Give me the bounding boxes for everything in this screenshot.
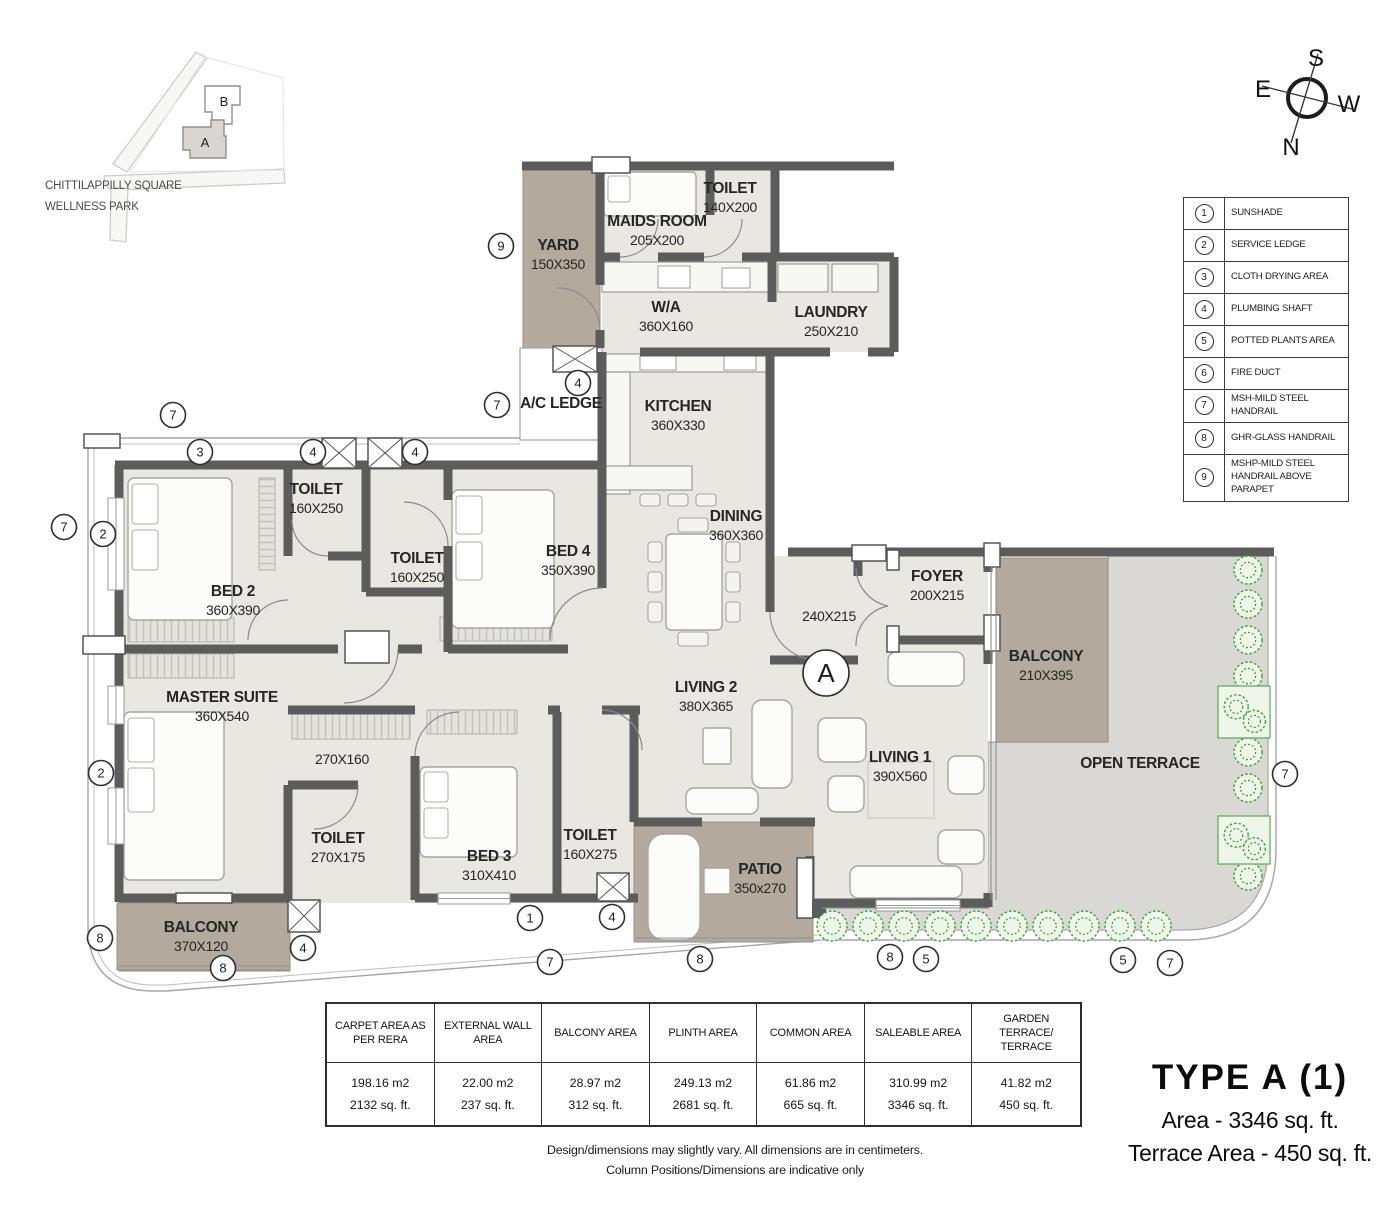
column bbox=[84, 434, 120, 448]
column bbox=[176, 893, 232, 903]
chair bbox=[696, 494, 716, 506]
column bbox=[984, 543, 1000, 567]
title-block: TYPE A (1) Area - 3346 sq. ft. Terrace A… bbox=[1085, 1058, 1400, 1167]
legend-number-circle: 7 bbox=[1195, 396, 1214, 415]
area-m2: 198.16 m2 bbox=[351, 1076, 409, 1090]
legend-number-cell: 9 bbox=[1184, 455, 1225, 501]
pillow bbox=[132, 484, 158, 524]
plan-marker-2: 2 bbox=[89, 761, 114, 786]
legend-number-circle: 4 bbox=[1195, 300, 1214, 319]
furniture bbox=[648, 834, 700, 940]
furniture bbox=[752, 700, 792, 788]
marker-number: 5 bbox=[1119, 953, 1126, 968]
chair bbox=[668, 494, 688, 506]
pillow bbox=[424, 808, 448, 838]
plumbing-shaft-box bbox=[368, 438, 402, 468]
marker-number: 1 bbox=[526, 911, 533, 926]
compass-west: W bbox=[1338, 91, 1361, 118]
plant bbox=[997, 911, 1027, 941]
disclaimer: Design/dimensions may slightly vary. All… bbox=[490, 1141, 980, 1181]
furniture bbox=[818, 718, 866, 762]
legend-number-cell: 5 bbox=[1184, 326, 1225, 357]
area-m2: 22.00 m2 bbox=[462, 1076, 513, 1090]
plan-marker-5: 5 bbox=[914, 947, 939, 972]
plan-marker-7: 7 bbox=[52, 515, 77, 540]
area-table-value: 310.99 m23346 sq. ft. bbox=[865, 1063, 973, 1125]
counter bbox=[604, 466, 692, 490]
plant bbox=[1234, 738, 1262, 766]
pillow bbox=[132, 530, 158, 570]
plan-marker-4: 4 bbox=[403, 440, 428, 465]
legend-number-cell: 7 bbox=[1184, 390, 1225, 422]
fixture bbox=[722, 268, 750, 288]
legend-number-cell: 4 bbox=[1184, 294, 1225, 325]
area-table-value: 249.13 m22681 sq. ft. bbox=[650, 1063, 758, 1125]
plan-marker-8: 8 bbox=[878, 945, 903, 970]
column bbox=[592, 157, 630, 173]
chair bbox=[726, 602, 740, 622]
area-sqft: 665 sq. ft. bbox=[784, 1098, 838, 1112]
legend-number-circle: 5 bbox=[1195, 332, 1214, 351]
counter bbox=[832, 264, 878, 292]
plant bbox=[925, 911, 955, 941]
column bbox=[984, 615, 1000, 651]
marker-number: 7 bbox=[1166, 956, 1173, 971]
legend-label: MSH-MILD STEEL HANDRAIL bbox=[1225, 390, 1348, 422]
column bbox=[887, 626, 899, 652]
column bbox=[887, 550, 899, 570]
chair bbox=[648, 572, 662, 592]
column bbox=[83, 636, 125, 654]
fixture bbox=[640, 356, 676, 370]
area-table-header: EXTERNAL WALL AREA bbox=[435, 1004, 543, 1063]
area-table-value: 28.97 m2312 sq. ft. bbox=[542, 1063, 650, 1125]
plan-marker-4: 4 bbox=[301, 440, 326, 465]
area-table-header: COMMON AREA bbox=[757, 1004, 865, 1063]
plan-marker-8: 8 bbox=[88, 926, 113, 951]
plant-outer bbox=[853, 911, 883, 941]
wardrobe bbox=[427, 710, 517, 734]
plan-marker-5: 5 bbox=[1111, 948, 1136, 973]
plant bbox=[1234, 626, 1262, 654]
legend-number-cell: 8 bbox=[1184, 423, 1225, 454]
plant-outer bbox=[1105, 911, 1135, 941]
legend-label: SERVICE LEDGE bbox=[1225, 230, 1348, 261]
plant-outer bbox=[997, 911, 1027, 941]
furniture bbox=[704, 868, 730, 894]
plant-outer bbox=[1234, 774, 1262, 802]
marker-number: 7 bbox=[1281, 767, 1288, 782]
plant-outer bbox=[1234, 590, 1262, 618]
plan-marker-8: 8 bbox=[211, 956, 236, 981]
legend-label: MSHP-MILD STEEL HANDRAIL ABOVE PARAPET bbox=[1225, 455, 1348, 501]
marker-number: 7 bbox=[546, 955, 553, 970]
marker-number: 7 bbox=[60, 520, 67, 535]
svg-text:A: A bbox=[817, 658, 835, 688]
pillow bbox=[424, 772, 448, 802]
plumbing-shaft-box bbox=[322, 438, 356, 468]
plant bbox=[889, 911, 919, 941]
legend-row-8: 8GHR-GLASS HANDRAIL bbox=[1184, 423, 1348, 455]
area-sqft: 2681 sq. ft. bbox=[673, 1098, 734, 1112]
plan-marker-7: 7 bbox=[161, 403, 186, 428]
column bbox=[852, 545, 886, 561]
plant bbox=[853, 911, 883, 941]
fixture bbox=[724, 356, 756, 370]
legend-row-9: 9MSHP-MILD STEEL HANDRAIL ABOVE PARAPET bbox=[1184, 455, 1348, 501]
plant-outer bbox=[1224, 823, 1248, 847]
legend-label: PLUMBING SHAFT bbox=[1225, 294, 1348, 325]
plant-outer bbox=[1243, 838, 1265, 860]
plant bbox=[817, 911, 847, 941]
pillow bbox=[456, 496, 482, 534]
area-table: CARPET AREA AS PER RERAEXTERNAL WALL ARE… bbox=[325, 1002, 1082, 1127]
pillow bbox=[608, 176, 630, 202]
plant-outer bbox=[1033, 911, 1063, 941]
area-table-value: 41.82 m2450 sq. ft. bbox=[972, 1063, 1080, 1125]
legend-label: FIRE DUCT bbox=[1225, 358, 1348, 389]
plan-marker-4: 4 bbox=[291, 936, 316, 961]
area-table-value: 198.16 m22132 sq. ft. bbox=[327, 1063, 435, 1125]
legend-row-4: 4PLUMBING SHAFT bbox=[1184, 294, 1348, 326]
compass-north: N bbox=[1282, 134, 1299, 161]
chair bbox=[678, 632, 708, 646]
disclaimer-line1: Design/dimensions may slightly vary. All… bbox=[490, 1141, 980, 1161]
room-label-open-terrace: OPEN TERRACE bbox=[1080, 755, 1200, 772]
plan-marker-7: 7 bbox=[538, 950, 563, 975]
plan-marker-7: 7 bbox=[1158, 951, 1183, 976]
chair bbox=[726, 542, 740, 562]
furniture bbox=[948, 756, 984, 794]
compass-south: S bbox=[1308, 45, 1324, 72]
furniture bbox=[938, 830, 984, 864]
plant-outer bbox=[1224, 695, 1248, 719]
plant bbox=[1033, 911, 1063, 941]
plant-outer bbox=[961, 911, 991, 941]
wardrobe bbox=[259, 478, 275, 570]
plan-type-title: TYPE A (1) bbox=[1085, 1058, 1400, 1098]
legend-number-circle: 2 bbox=[1195, 236, 1214, 255]
furniture bbox=[666, 534, 722, 630]
plant bbox=[961, 911, 991, 941]
plumbing-shaft-box bbox=[597, 873, 629, 901]
pillow bbox=[128, 768, 154, 812]
plant bbox=[1224, 695, 1248, 719]
legend-number-circle: 6 bbox=[1195, 364, 1214, 383]
plant bbox=[1141, 911, 1171, 941]
plan-marker-7: 7 bbox=[485, 393, 510, 418]
chair bbox=[678, 518, 708, 532]
marker-number: 8 bbox=[886, 950, 893, 965]
marker-number: 7 bbox=[169, 408, 176, 423]
compass-east: E bbox=[1255, 76, 1271, 103]
legend-row-7: 7MSH-MILD STEEL HANDRAIL bbox=[1184, 390, 1348, 423]
area-m2: 41.82 m2 bbox=[1001, 1076, 1052, 1090]
site-map: B A CHITTILAPPILLY SQUARE WELLNESS PARK bbox=[45, 52, 285, 242]
area-sqft: 450 sq. ft. bbox=[999, 1098, 1053, 1112]
window bbox=[876, 900, 960, 911]
marker-number: 3 bbox=[196, 445, 203, 460]
fixture bbox=[658, 266, 690, 288]
plan-marker-3: 3 bbox=[188, 440, 213, 465]
furniture bbox=[686, 788, 758, 814]
chair bbox=[726, 572, 740, 592]
marker-number: 2 bbox=[99, 527, 106, 542]
pillow bbox=[128, 718, 154, 762]
column bbox=[345, 631, 389, 663]
counter bbox=[778, 264, 828, 292]
column bbox=[797, 858, 813, 918]
marker-number: 4 bbox=[411, 445, 418, 460]
marker-number: 8 bbox=[96, 931, 103, 946]
legend-row-5: 5POTTED PLANTS AREA bbox=[1184, 326, 1348, 358]
legend-number-cell: 2 bbox=[1184, 230, 1225, 261]
plan-marker-8: 8 bbox=[688, 947, 713, 972]
plant bbox=[1234, 590, 1262, 618]
marker-number: 5 bbox=[922, 952, 929, 967]
legend-number-circle: 3 bbox=[1195, 268, 1214, 287]
marker-number: 7 bbox=[493, 398, 500, 413]
wardrobe bbox=[292, 713, 410, 739]
legend-label: GHR-GLASS HANDRAIL bbox=[1225, 423, 1348, 454]
plant bbox=[1234, 774, 1262, 802]
plan-marker-7: 7 bbox=[1273, 762, 1298, 787]
area-table-header: SALEABLE AREA bbox=[865, 1004, 973, 1063]
plumbing-shaft-box bbox=[288, 900, 320, 932]
plan-marker-4: 4 bbox=[566, 371, 591, 396]
area-m2: 249.13 m2 bbox=[674, 1076, 732, 1090]
window bbox=[108, 788, 124, 844]
site-caption-line2: WELLNESS PARK bbox=[45, 201, 139, 213]
plant-outer bbox=[1234, 626, 1262, 654]
area-table-header: BALCONY AREA bbox=[542, 1004, 650, 1063]
furniture bbox=[703, 728, 731, 764]
plant bbox=[1243, 710, 1265, 732]
legend-label: CLOTH DRYING AREA bbox=[1225, 262, 1348, 293]
legend-table: 1SUNSHADE2SERVICE LEDGE3CLOTH DRYING ARE… bbox=[1183, 197, 1349, 502]
legend-number-cell: 6 bbox=[1184, 358, 1225, 389]
plant-outer bbox=[817, 911, 847, 941]
room-label-a-c-ledge: A/C LEDGE bbox=[520, 395, 602, 412]
plant bbox=[1243, 838, 1265, 860]
legend-row-1: 1SUNSHADE bbox=[1184, 198, 1348, 230]
area-sqft: 237 sq. ft. bbox=[461, 1098, 515, 1112]
marker-number: 2 bbox=[97, 766, 104, 781]
area-m2: 61.86 m2 bbox=[785, 1076, 836, 1090]
site-building-a-label: A bbox=[201, 135, 210, 150]
site-building-b-label: B bbox=[220, 94, 229, 109]
area-m2: 310.99 m2 bbox=[889, 1076, 947, 1090]
room-label-240x215: 240X215 bbox=[802, 608, 856, 624]
site-caption-line1: CHITTILAPPILLY SQUARE bbox=[45, 180, 182, 192]
area-sqft: 2132 sq. ft. bbox=[350, 1098, 411, 1112]
legend-number-circle: 9 bbox=[1195, 468, 1214, 487]
plan-marker-9: 9 bbox=[489, 234, 514, 259]
plant bbox=[1234, 556, 1262, 584]
area-sqft: 3346 sq. ft. bbox=[888, 1098, 949, 1112]
window bbox=[108, 686, 124, 724]
plant-outer bbox=[1234, 556, 1262, 584]
plant bbox=[1224, 823, 1248, 847]
pillow bbox=[456, 542, 482, 580]
area-table-header: PLINTH AREA bbox=[650, 1004, 758, 1063]
floor-plan-root: YARD150X350MAIDS ROOM205X200TOILET140X20… bbox=[52, 157, 1298, 991]
plant-outer bbox=[925, 911, 955, 941]
legend-label: SUNSHADE bbox=[1225, 198, 1348, 229]
plan-marker-1: 1 bbox=[518, 906, 543, 931]
wardrobe bbox=[128, 618, 234, 642]
section-marker-a: A bbox=[803, 650, 849, 696]
room-label-270x160: 270X160 bbox=[315, 751, 369, 767]
plant-outer bbox=[1234, 738, 1262, 766]
wardrobe bbox=[128, 654, 234, 678]
legend-number-circle: 1 bbox=[1195, 204, 1214, 223]
plant bbox=[1105, 911, 1135, 941]
compass: S E W N bbox=[1255, 45, 1361, 161]
plant-outer bbox=[1069, 911, 1099, 941]
legend-number-cell: 3 bbox=[1184, 262, 1225, 293]
legend-row-6: 6FIRE DUCT bbox=[1184, 358, 1348, 390]
window bbox=[438, 893, 510, 904]
legend-row-3: 3CLOTH DRYING AREA bbox=[1184, 262, 1348, 294]
legend-number-cell: 1 bbox=[1184, 198, 1225, 229]
area-m2: 28.97 m2 bbox=[570, 1076, 621, 1090]
furniture bbox=[828, 776, 864, 812]
plan-marker-2: 2 bbox=[91, 522, 116, 547]
marker-number: 4 bbox=[309, 445, 316, 460]
marker-number: 4 bbox=[608, 910, 615, 925]
marker-number: 4 bbox=[574, 376, 581, 391]
plumbing-shaft-box bbox=[553, 346, 597, 372]
disclaimer-line2: Column Positions/Dimensions are indicati… bbox=[490, 1161, 980, 1181]
chair bbox=[648, 602, 662, 622]
area-table-header: CARPET AREA AS PER RERA bbox=[327, 1004, 435, 1063]
plant bbox=[1234, 862, 1262, 890]
area-table-value: 22.00 m2237 sq. ft. bbox=[435, 1063, 543, 1125]
plan-terrace-area-text: Terrace Area - 450 sq. ft. bbox=[1085, 1140, 1400, 1167]
plant-outer bbox=[1141, 911, 1171, 941]
legend-label: POTTED PLANTS AREA bbox=[1225, 326, 1348, 357]
floor-plan-page: B A CHITTILAPPILLY SQUARE WELLNESS PARK … bbox=[0, 0, 1400, 1220]
area-sqft: 312 sq. ft. bbox=[568, 1098, 622, 1112]
marker-number: 9 bbox=[497, 239, 504, 254]
marker-number: 8 bbox=[219, 961, 226, 976]
legend-number-circle: 8 bbox=[1195, 429, 1214, 448]
plant-outer bbox=[889, 911, 919, 941]
plan-marker-4: 4 bbox=[600, 905, 625, 930]
plant-outer bbox=[1234, 862, 1262, 890]
marker-number: 8 bbox=[696, 952, 703, 967]
plan-area-text: Area - 3346 sq. ft. bbox=[1085, 1107, 1400, 1134]
chair bbox=[648, 542, 662, 562]
furniture bbox=[850, 866, 962, 898]
furniture bbox=[888, 652, 964, 686]
chair bbox=[640, 494, 660, 506]
balcony-bottom-left-area bbox=[117, 903, 290, 970]
area-table-value: 61.86 m2665 sq. ft. bbox=[757, 1063, 865, 1125]
legend-row-2: 2SERVICE LEDGE bbox=[1184, 230, 1348, 262]
marker-number: 4 bbox=[299, 941, 306, 956]
plant bbox=[1069, 911, 1099, 941]
plant-outer bbox=[1243, 710, 1265, 732]
area-table-header: GARDEN TERRACE/ TERRACE bbox=[972, 1004, 1080, 1063]
